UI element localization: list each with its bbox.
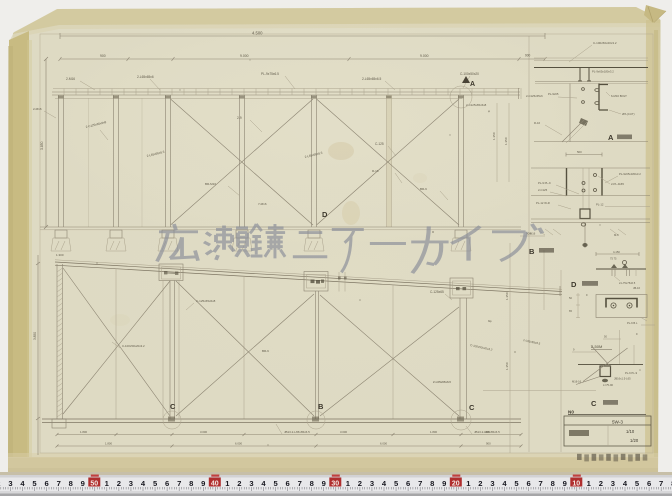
svg-text:2: 2 [237, 479, 241, 488]
svg-text:9.000: 9.000 [240, 54, 249, 58]
svg-text:9: 9 [322, 479, 326, 488]
svg-text:7: 7 [57, 479, 61, 488]
svg-text:BR-9: BR-9 [420, 187, 427, 191]
svg-text:8: 8 [189, 479, 193, 488]
svg-text:1.350: 1.350 [492, 132, 496, 140]
svg-text:7: 7 [298, 479, 302, 488]
svg-text:A: A [608, 133, 614, 142]
svg-text:JB-16: JB-16 [633, 286, 641, 290]
svg-text:C-100x50x20x3.2: C-100x50x20x3.2 [593, 41, 617, 45]
svg-text:1.350: 1.350 [504, 137, 508, 145]
svg-text:B: B [529, 247, 535, 256]
svg-text:8: 8 [430, 479, 434, 488]
svg-text:9: 9 [563, 479, 567, 488]
svg-text:3: 3 [129, 479, 133, 488]
svg-text:8: 8 [310, 479, 314, 488]
svg-text:6: 6 [285, 479, 289, 488]
svg-text:900: 900 [525, 54, 531, 58]
svg-text:2PL(CUT): 2PL(CUT) [622, 112, 635, 116]
svg-text:1.300: 1.300 [56, 253, 64, 257]
svg-text:N0: N0 [568, 410, 574, 415]
svg-text:PL-9 PL-9: PL-9 PL-9 [538, 181, 551, 185]
svg-text:C: C [591, 399, 597, 408]
svg-text:6: 6 [165, 479, 169, 488]
svg-text:PL-9 PL-9: PL-9 PL-9 [625, 371, 638, 375]
svg-text:2-C125x65x6: 2-C125x65x6 [526, 94, 543, 98]
svg-text:R-16: R-16 [372, 169, 379, 173]
svg-text:2: 2 [117, 479, 121, 488]
svg-text:2: 2 [0, 479, 1, 488]
svg-text:6-M16 BOLT: 6-M16 BOLT [611, 94, 627, 98]
svg-text:M-9: M-9 [614, 233, 619, 237]
svg-text:PL-9x65x180x3.2: PL-9x65x180x3.2 [592, 70, 614, 74]
svg-text:2-9: 2-9 [237, 116, 242, 120]
svg-text:1.800: 1.800 [105, 442, 112, 446]
svg-text:7-M16: 7-M16 [258, 202, 267, 206]
svg-text:PL-9x65: PL-9x65 [548, 92, 559, 96]
svg-text:6: 6 [647, 479, 651, 488]
svg-text:D: D [571, 280, 577, 289]
svg-text:BR-M16: BR-M16 [205, 182, 216, 186]
svg-text:B: B [318, 402, 324, 411]
svg-text:40: 40 [211, 481, 219, 488]
svg-text:1.800: 1.800 [80, 430, 87, 434]
svg-text:2: 2 [478, 479, 482, 488]
svg-text:PL-9x65x180x3.2: PL-9x65x180x3.2 [619, 172, 641, 176]
svg-text:3.850: 3.850 [40, 141, 44, 150]
svg-text:C: C [170, 402, 176, 411]
svg-text:3: 3 [370, 479, 374, 488]
svg-text:PL-9 B.L: PL-9 B.L [627, 321, 638, 325]
svg-text:2-C125: 2-C125 [538, 188, 548, 192]
svg-text:C: C [469, 403, 475, 412]
svg-text:L=75-90: L=75-90 [603, 383, 613, 387]
svg-text:8: 8 [69, 479, 73, 488]
svg-text:3: 3 [8, 479, 12, 488]
svg-text:7: 7 [659, 479, 663, 488]
svg-text:A: A [470, 81, 475, 88]
svg-text:900: 900 [485, 430, 490, 434]
svg-text:2-PL-9x65: 2-PL-9x65 [611, 182, 624, 186]
svg-text:C-125x65x6x8: C-125x65x6x8 [196, 299, 216, 303]
svg-text:2-L75x75x6.5: 2-L75x75x6.5 [619, 281, 636, 285]
svg-text:1/20: 1/20 [630, 438, 639, 443]
svg-text:1.350: 1.350 [505, 362, 509, 370]
svg-text:D: D [322, 210, 328, 219]
svg-text:2-C125x65x6x8: 2-C125x65x6x8 [466, 103, 487, 107]
svg-text:C-100x50x20x3.2: C-100x50x20x3.2 [122, 344, 145, 348]
svg-text:20: 20 [452, 481, 460, 488]
svg-text:2: 2 [358, 479, 362, 488]
svg-text:2-M16: 2-M16 [33, 107, 42, 111]
svg-text:4.500: 4.500 [252, 31, 263, 36]
svg-text:9: 9 [201, 479, 205, 488]
svg-text:7: 7 [177, 479, 181, 488]
svg-text:50: 50 [90, 481, 98, 488]
svg-text:3: 3 [611, 479, 615, 488]
svg-text:2-50M: 2-50M [591, 344, 602, 349]
svg-text:1.800: 1.800 [430, 430, 437, 434]
svg-text:6.000: 6.000 [380, 442, 387, 446]
svg-text:1.350: 1.350 [505, 292, 509, 300]
svg-text:30: 30 [331, 481, 339, 488]
svg-text:M16: M16 [530, 232, 536, 236]
svg-text:3: 3 [249, 479, 253, 488]
svg-text:6: 6 [406, 479, 410, 488]
svg-text:3: 3 [490, 479, 494, 488]
svg-text:C-125: C-125 [375, 142, 384, 146]
svg-text:JB13.2-L65x65x6.5: JB13.2-L65x65x6.5 [284, 430, 310, 434]
svg-text:900: 900 [486, 442, 491, 446]
svg-text:R-16: R-16 [534, 121, 541, 125]
svg-text:2: 2 [599, 479, 603, 488]
svg-text:900: 900 [100, 54, 106, 58]
svg-text:4-150: 4-150 [613, 250, 620, 254]
svg-text:3.850: 3.850 [33, 332, 37, 340]
svg-text:9.000: 9.000 [420, 54, 429, 58]
svg-text:2-M16: 2-M16 [66, 77, 75, 81]
svg-text:PL-12 W-R: PL-12 W-R [536, 201, 550, 205]
svg-text:1/10: 1/10 [626, 429, 635, 434]
svg-text:M16-16: M16-16 [572, 380, 582, 384]
svg-text:2-L65x65x6.5: 2-L65x65x6.5 [362, 77, 382, 81]
svg-text:6: 6 [526, 479, 530, 488]
svg-text:9: 9 [442, 479, 446, 488]
svg-text:6: 6 [44, 479, 48, 488]
svg-text:φ: φ [488, 109, 490, 113]
svg-text:75 75: 75 75 [610, 257, 617, 261]
svg-text:PL-12: PL-12 [596, 203, 604, 207]
svg-text:8: 8 [551, 479, 555, 488]
svg-text:C-125x65: C-125x65 [430, 290, 444, 294]
svg-text:9: 9 [81, 479, 85, 488]
svg-text:5W-3: 5W-3 [612, 420, 623, 425]
svg-text:6.000: 6.000 [235, 442, 242, 446]
svg-text:7: 7 [418, 479, 422, 488]
svg-text:9φ: 9φ [488, 319, 492, 323]
svg-text:2-L65x65x6.5: 2-L65x65x6.5 [433, 380, 451, 384]
svg-text:500: 500 [577, 150, 582, 154]
svg-text:C-100x50x20: C-100x50x20 [460, 72, 479, 76]
svg-text:JB16x1.5-L65: JB16x1.5-L65 [614, 377, 631, 381]
svg-text:BR-9: BR-9 [262, 349, 269, 353]
svg-text:3.000: 3.000 [340, 430, 347, 434]
svg-text:PL-9x75x6.5: PL-9x75x6.5 [261, 72, 279, 76]
svg-text:7: 7 [538, 479, 542, 488]
svg-text:2-L65x65x6: 2-L65x65x6 [137, 75, 154, 79]
svg-text:10: 10 [572, 481, 580, 488]
svg-text:3.000: 3.000 [200, 430, 207, 434]
